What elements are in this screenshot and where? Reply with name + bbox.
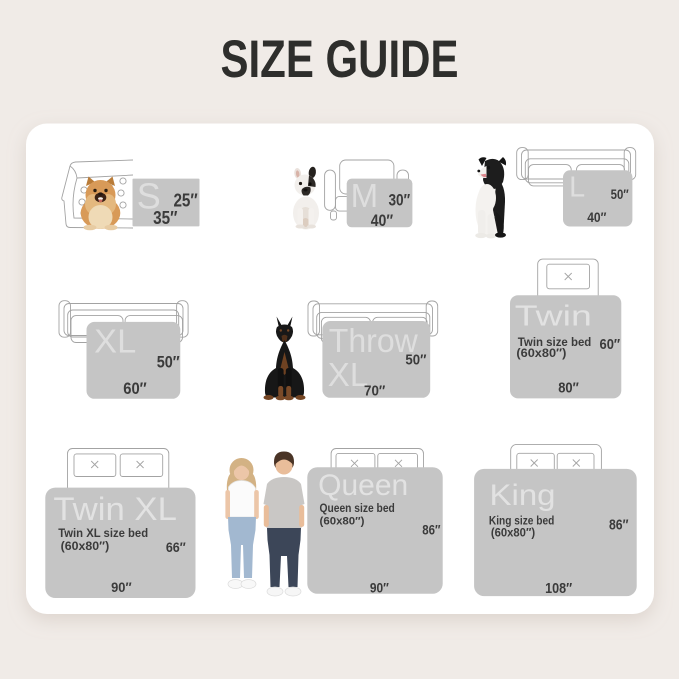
svg-text:40″: 40″ <box>371 211 393 230</box>
svg-text:(60x80″): (60x80″) <box>491 526 535 539</box>
svg-text:40″: 40″ <box>587 209 606 225</box>
svg-text:60″: 60″ <box>600 337 621 353</box>
svg-text:(60x80″): (60x80″) <box>516 347 566 360</box>
svg-text:50″: 50″ <box>157 354 180 372</box>
svg-text:70″: 70″ <box>364 384 385 400</box>
svg-text:86″: 86″ <box>422 523 440 539</box>
svg-text:90″: 90″ <box>370 581 389 596</box>
svg-text:35″: 35″ <box>153 208 178 228</box>
svg-text:66″: 66″ <box>166 540 186 556</box>
svg-text:50″: 50″ <box>611 186 629 202</box>
svg-text:80″: 80″ <box>558 381 579 397</box>
svg-text:(60x80″): (60x80″) <box>61 541 110 553</box>
svg-text:Queen: Queen <box>318 469 408 502</box>
svg-text:Twin: Twin <box>515 300 592 332</box>
svg-text:90″: 90″ <box>111 580 132 595</box>
svg-text:Twin XL: Twin XL <box>53 491 177 527</box>
svg-text:Twin XL size bed: Twin XL size bed <box>58 528 148 540</box>
svg-text:(60x80″): (60x80″) <box>320 516 365 528</box>
svg-text:60″: 60″ <box>123 380 147 398</box>
svg-text:XL: XL <box>328 356 369 393</box>
svg-text:SIZE GUIDE: SIZE GUIDE <box>221 30 459 89</box>
svg-text:M: M <box>351 177 379 214</box>
svg-text:30″: 30″ <box>388 191 410 210</box>
svg-text:50″: 50″ <box>405 353 426 369</box>
svg-text:King: King <box>490 479 556 512</box>
svg-text:Queen size bed: Queen size bed <box>320 503 395 515</box>
svg-text:L: L <box>569 172 585 204</box>
svg-text:86″: 86″ <box>609 518 629 534</box>
svg-text:XL: XL <box>94 322 136 359</box>
svg-text:108″: 108″ <box>545 581 572 597</box>
